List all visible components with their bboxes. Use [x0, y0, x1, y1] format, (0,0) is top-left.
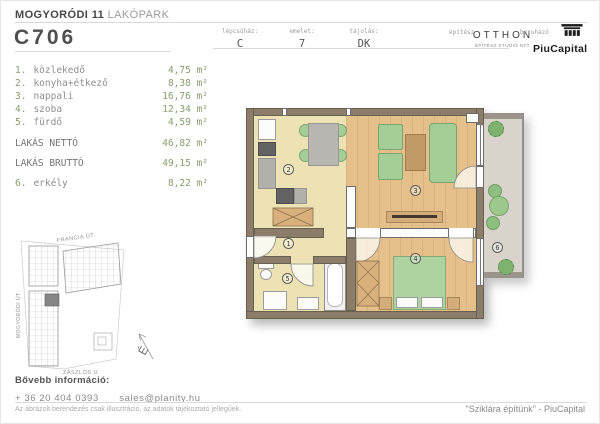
room-area: 8,22 m²	[168, 178, 208, 189]
footer-contact: + 36 20 404 0393 sales@planity.hu	[15, 388, 201, 406]
compass: É	[134, 334, 153, 359]
room-name: közlekedő	[33, 65, 84, 76]
footer-info-label: Bővebb információ:	[15, 375, 110, 386]
footer-slogan: "Sziklára építünk" - PiuCapital	[466, 404, 585, 414]
room-name: fürdő	[33, 117, 62, 128]
compass-north-letter: É	[134, 343, 151, 357]
door-arc-bathroom	[291, 264, 313, 286]
building-top	[63, 243, 121, 293]
room-entry: 5.fürdő	[15, 117, 62, 128]
street-label-top: FRANCIA ÚT	[56, 233, 94, 244]
total-net-row: LAKÁS NETTÓ 46,82 m²	[15, 138, 208, 149]
room-area: 4,75 m²	[168, 65, 208, 76]
total-area: 49,15 m²	[162, 158, 208, 169]
developer-logo: PiuCapital	[533, 24, 585, 55]
room-entry: 1.közlekedő	[15, 65, 85, 76]
room-num: 3.	[15, 91, 26, 102]
room-area: 12,34 m²	[162, 104, 208, 115]
developer-name: PiuCapital	[533, 43, 585, 55]
door-arc-bedroom-left	[356, 238, 380, 262]
meta-floor-label: emelet:	[271, 28, 333, 35]
area-row-3: 3.nappali 16,76 m²	[15, 91, 208, 102]
room-num: 5.	[15, 117, 26, 128]
hall-wardrobe	[273, 208, 313, 226]
total-gross-row: LAKÁS BRUTTÓ 49,15 m²	[15, 158, 208, 169]
room-area: 4,59 m²	[168, 117, 208, 128]
room-entry: 6.erkély	[15, 178, 68, 189]
street-label-left: MOGYORÓDI ÚT	[15, 292, 22, 338]
floorplan-sheet: MOGYORÓDI 11 LAKÓPARK C706 lépcsőház: C …	[0, 0, 600, 424]
room-badge-balcony: 6	[492, 242, 503, 253]
room-num: 6.	[15, 178, 26, 189]
total-label: LAKÁS NETTÓ	[15, 138, 78, 149]
room-num: 1.	[15, 65, 26, 76]
room-num: 2.	[15, 78, 26, 89]
balcony-row: 6.erkély 8,22 m²	[15, 178, 208, 189]
meta-staircase-label: lépcsőház:	[209, 28, 271, 35]
meta-underline	[213, 48, 509, 49]
meta-floor: emelet: 7	[271, 28, 333, 50]
floorplan-annotations	[241, 101, 541, 333]
architect-subtitle: ÉPÍTÉSZ STÚDIÓ KFT.	[467, 43, 539, 48]
meta-orientation: tájolás: DK	[333, 28, 395, 50]
door-arc-entry	[254, 236, 276, 258]
room-entry: 2.konyha+étkező	[15, 78, 108, 89]
room-badge-bedroom: 4	[410, 253, 421, 264]
area-row-5: 5.fürdő 4,59 m²	[15, 117, 208, 128]
project-title-light: LAKÓPARK	[108, 9, 170, 21]
meta-staircase: lépcsőház: C	[209, 28, 271, 50]
footer-disclaimer: Az ábrázolt berendezés csak illusztráció…	[15, 406, 241, 413]
room-name: konyha+étkező	[33, 78, 107, 89]
unit-underline	[15, 51, 171, 52]
total-area: 46,82 m²	[162, 138, 208, 149]
area-row-1: 1.közlekedő 4,75 m²	[15, 65, 208, 76]
project-title-bold: MOGYORÓDI 11	[15, 9, 104, 21]
project-title: MOGYORÓDI 11 LAKÓPARK	[15, 9, 169, 21]
highlighted-unit	[45, 294, 59, 306]
room-badge-living: 3	[410, 185, 421, 196]
building-left-upper	[29, 246, 58, 286]
room-num: 4.	[15, 104, 26, 115]
room-area: 16,76 m²	[162, 91, 208, 102]
door-arc-bedroom-right	[449, 238, 473, 262]
room-name: szoba	[33, 104, 62, 115]
unit-code: C706	[14, 26, 76, 50]
room-entry: 4.szoba	[15, 104, 62, 115]
room-entry: 3.nappali	[15, 91, 74, 102]
piucapital-column-icon	[559, 24, 585, 38]
room-badge-hall: 1	[283, 238, 294, 249]
meta-orientation-label: tájolás:	[333, 28, 395, 35]
structure-small	[94, 333, 112, 350]
header-divider	[15, 22, 587, 23]
bedroom-wardrobe	[357, 261, 379, 306]
site-plan: FRANCIA ÚT MOGYORÓDI ÚT ZÁSZLÓS U. É	[11, 233, 186, 378]
area-row-4: 4.szoba 12,34 m²	[15, 104, 208, 115]
unit-meta: lépcsőház: C emelet: 7 tájolás: DK	[209, 28, 395, 50]
footer-divider	[15, 402, 587, 403]
room-name: erkély	[33, 178, 67, 189]
door-arc-balcony	[454, 166, 476, 188]
room-area: 8,38 m²	[168, 78, 208, 89]
room-name: nappali	[33, 91, 73, 102]
total-label: LAKÁS BRUTTÓ	[15, 158, 84, 169]
floorplan: 1 2 3 4 5 6	[241, 101, 541, 333]
area-row-2: 2.konyha+étkező 8,38 m²	[15, 78, 208, 89]
room-badge-bathroom: 5	[282, 273, 293, 284]
room-badge-kitchen: 2	[283, 164, 294, 175]
